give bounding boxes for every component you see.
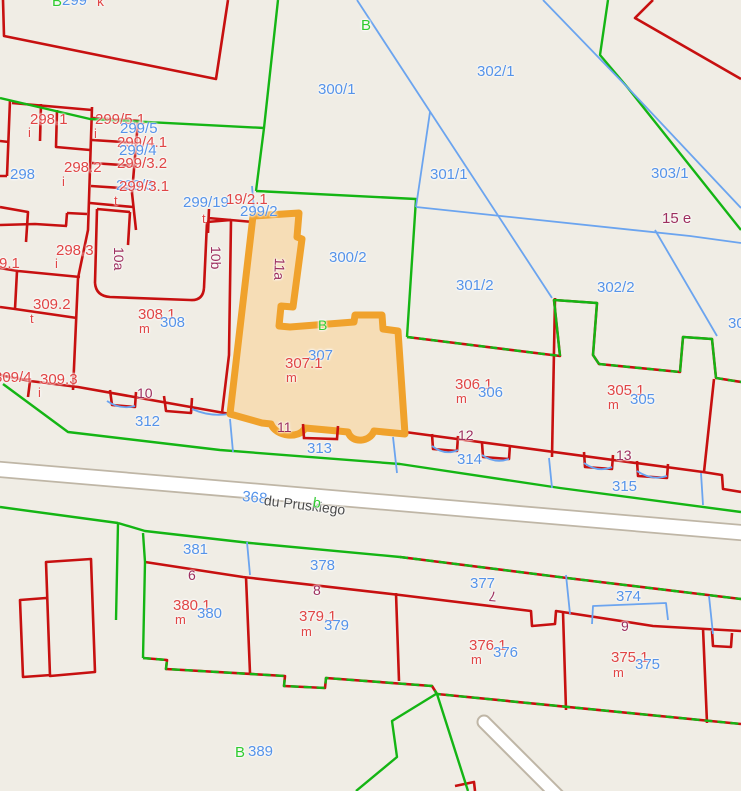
highlighted-parcel-307[interactable] bbox=[230, 213, 405, 440]
road-main bbox=[0, 469, 741, 533]
boundary-lines-blue bbox=[107, 0, 741, 634]
map-vector-layer bbox=[0, 0, 741, 791]
cadastral-map-canvas[interactable]: B299k298.1i298298.2i299/5.1299/5i299/4.1… bbox=[0, 0, 741, 791]
road-secondary bbox=[484, 722, 558, 791]
